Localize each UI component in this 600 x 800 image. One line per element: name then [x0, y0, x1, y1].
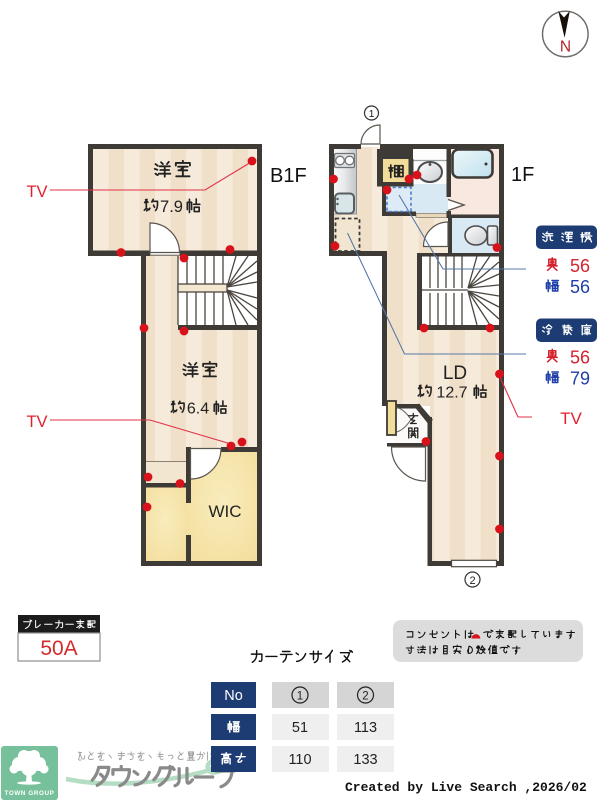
svg-text:2: 2	[469, 575, 475, 587]
svg-text:56: 56	[570, 256, 590, 276]
svg-text:No: No	[224, 688, 243, 704]
svg-text:TV: TV	[26, 183, 47, 201]
svg-text:1: 1	[297, 691, 303, 703]
svg-text:Created by Live Search ,2026/0: Created by Live Search ,2026/02	[345, 780, 587, 795]
svg-text:TV: TV	[26, 413, 47, 431]
svg-text:6.4: 6.4	[187, 401, 209, 418]
svg-text:133: 133	[353, 752, 377, 768]
svg-text:113: 113	[354, 720, 377, 736]
svg-text:WIC: WIC	[208, 502, 241, 521]
svg-text:1F: 1F	[511, 164, 534, 186]
svg-text:N: N	[560, 39, 571, 56]
svg-text:56: 56	[570, 348, 590, 368]
svg-text:2: 2	[362, 691, 368, 703]
svg-text:LD: LD	[443, 363, 467, 384]
svg-text:1: 1	[369, 108, 375, 120]
svg-text:56: 56	[570, 277, 590, 297]
svg-text:B1F: B1F	[270, 165, 307, 187]
svg-text:110: 110	[288, 752, 311, 768]
svg-text:TV: TV	[560, 409, 582, 428]
svg-text:50A: 50A	[40, 637, 77, 660]
svg-text:79: 79	[570, 369, 590, 389]
svg-text:TOWN GROUP: TOWN GROUP	[5, 790, 55, 797]
svg-text:12.7: 12.7	[436, 385, 467, 402]
svg-text:51: 51	[292, 720, 308, 736]
svg-text:7.9: 7.9	[160, 198, 183, 216]
